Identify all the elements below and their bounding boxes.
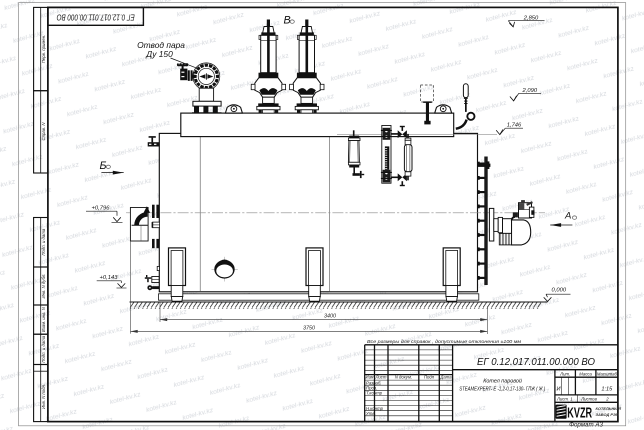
svg-text:+0,796: +0,796 [92,206,111,212]
svg-text:ЕГ 0.12.017.011.00.000 ВО: ЕГ 0.12.017.011.00.000 ВО [57,12,135,21]
svg-text:Инв. N подл.: Инв. N подл. [41,384,46,409]
svg-text:Подп. и дата: Подп. и дата [41,228,46,256]
svg-text:1:15: 1:15 [601,386,613,392]
svg-text:0,000: 0,000 [552,288,567,294]
svg-text:Т.контр: Т.контр [366,391,383,396]
svg-text:КОТЕЛЬНЫЙ: КОТЕЛЬНЫЙ [596,406,622,411]
svg-text:Масштаб: Масштаб [597,372,618,377]
svg-text:Формат А3: Формат А3 [569,422,603,429]
svg-text:Б: Б [100,160,107,172]
svg-text:3750: 3750 [303,325,315,331]
svg-text:N докум.: N докум. [395,374,412,379]
svg-text:ЕГ 0.12.017.011.00.000 ВО: ЕГ 0.12.017.011.00.000 ВО [477,356,595,368]
svg-text:KVZR: KVZR [567,405,592,421]
svg-text:2,090: 2,090 [522,88,538,94]
svg-text:Взам. инв. N: Взам. инв. N [41,306,46,332]
svg-text:1,746: 1,746 [507,123,522,129]
svg-text:А: А [564,210,571,221]
svg-text:Подп: Подп [424,374,435,379]
svg-text:Дата: Дата [439,374,452,379]
svg-text:Инв. N дубл.: Инв. N дубл. [41,274,46,299]
svg-text:Все размеры для справок , допу: Все размеры для справок , допустимые отк… [367,339,522,345]
svg-text:Справ. N: Справ. N [41,122,46,141]
svg-text:Лист: Лист [556,397,568,402]
svg-text:В: В [284,15,291,27]
svg-text:Котел паровой: Котел паровой [483,378,522,385]
svg-text:+0,143: +0,143 [100,275,119,281]
svg-text:Лист: Лист [374,374,386,379]
svg-text:ЗАВОД РЭП: ЗАВОД РЭП [596,412,619,417]
svg-text:Листов: Листов [580,397,597,402]
svg-text:Ду 150: Ду 150 [145,49,173,59]
svg-text:Перв. примен.: Перв. примен. [41,35,46,64]
svg-text:3400: 3400 [324,314,336,320]
svg-text:Утв.: Утв. [366,411,376,416]
svg-text:Масса: Масса [579,372,592,377]
svg-text:Подп. и дата: Подп. и дата [41,335,46,363]
svg-text:Лит.: Лит. [559,372,570,377]
svg-text:STEAMEXPERT- Е -1,2-0,17-130-: STEAMEXPERT- Е -1,2-0,17-130- ГЛЖ ( Ж ) [459,387,545,393]
svg-text:И: И [556,387,560,393]
svg-text:Изм: Изм [366,374,374,379]
